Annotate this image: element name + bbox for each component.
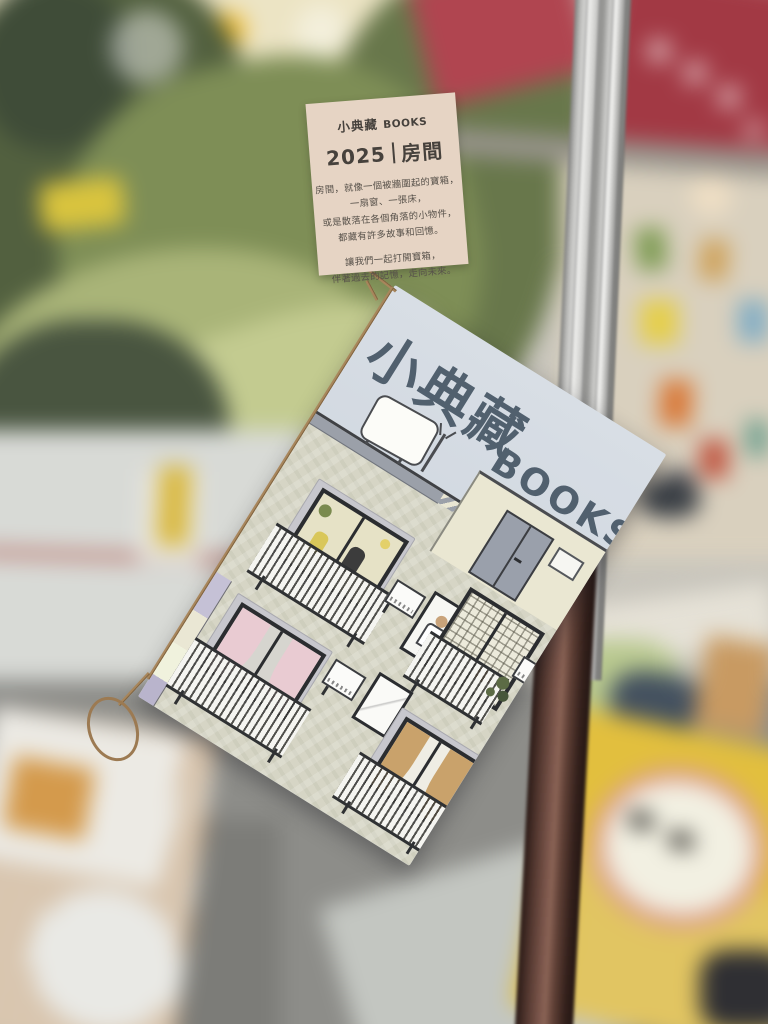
tag-year: 2025 [325, 142, 386, 171]
banner-glyph [647, 39, 672, 64]
tag-brand-mark: BOOKS [383, 116, 428, 131]
chair-blob [640, 478, 700, 518]
mural-van [38, 176, 127, 233]
bokeh-light [690, 175, 732, 217]
divider [392, 142, 395, 163]
tag-theme: 房間 [400, 135, 444, 167]
banner-glyph [717, 85, 742, 110]
book-cover-blob [640, 300, 678, 344]
book-stack-label [2, 755, 95, 840]
book-cover-blob [700, 440, 728, 478]
book-cover-blob [738, 300, 768, 342]
tag-card: 小典藏 BOOKS 2025 房間 房間，就像一個被牆圍起的寶箱， 一扇窗、一張… [305, 92, 468, 275]
book-cover-blob [658, 379, 693, 427]
photo-scene: 小典藏 BOOKS 2025・房間 [0, 0, 768, 1024]
tag-brand-title: 小典藏 [337, 117, 379, 135]
tag-brand-row: 小典藏 BOOKS [307, 107, 458, 138]
bokeh-light [295, 5, 347, 57]
banner-glyph [743, 119, 766, 142]
banner-glyph [683, 61, 708, 86]
tag-title-row: 2025 房間 [309, 133, 461, 174]
door-split [493, 526, 532, 586]
bokeh-light [110, 10, 184, 84]
lamp [378, 537, 392, 551]
book-spine-blob [156, 465, 192, 547]
penthouse-vent [548, 547, 585, 582]
chair-blob [700, 950, 768, 1024]
door-handle [514, 557, 522, 563]
book-cover-blob [698, 239, 730, 282]
book-cover-blob [634, 227, 668, 271]
plant-in-window [316, 502, 334, 520]
book-cover-blob [746, 420, 768, 456]
tag-body-text: 房間，就像一個被牆圍起的寶箱， 一扇窗、一張床， 或是散落在各個角落的小物件， … [312, 172, 470, 290]
